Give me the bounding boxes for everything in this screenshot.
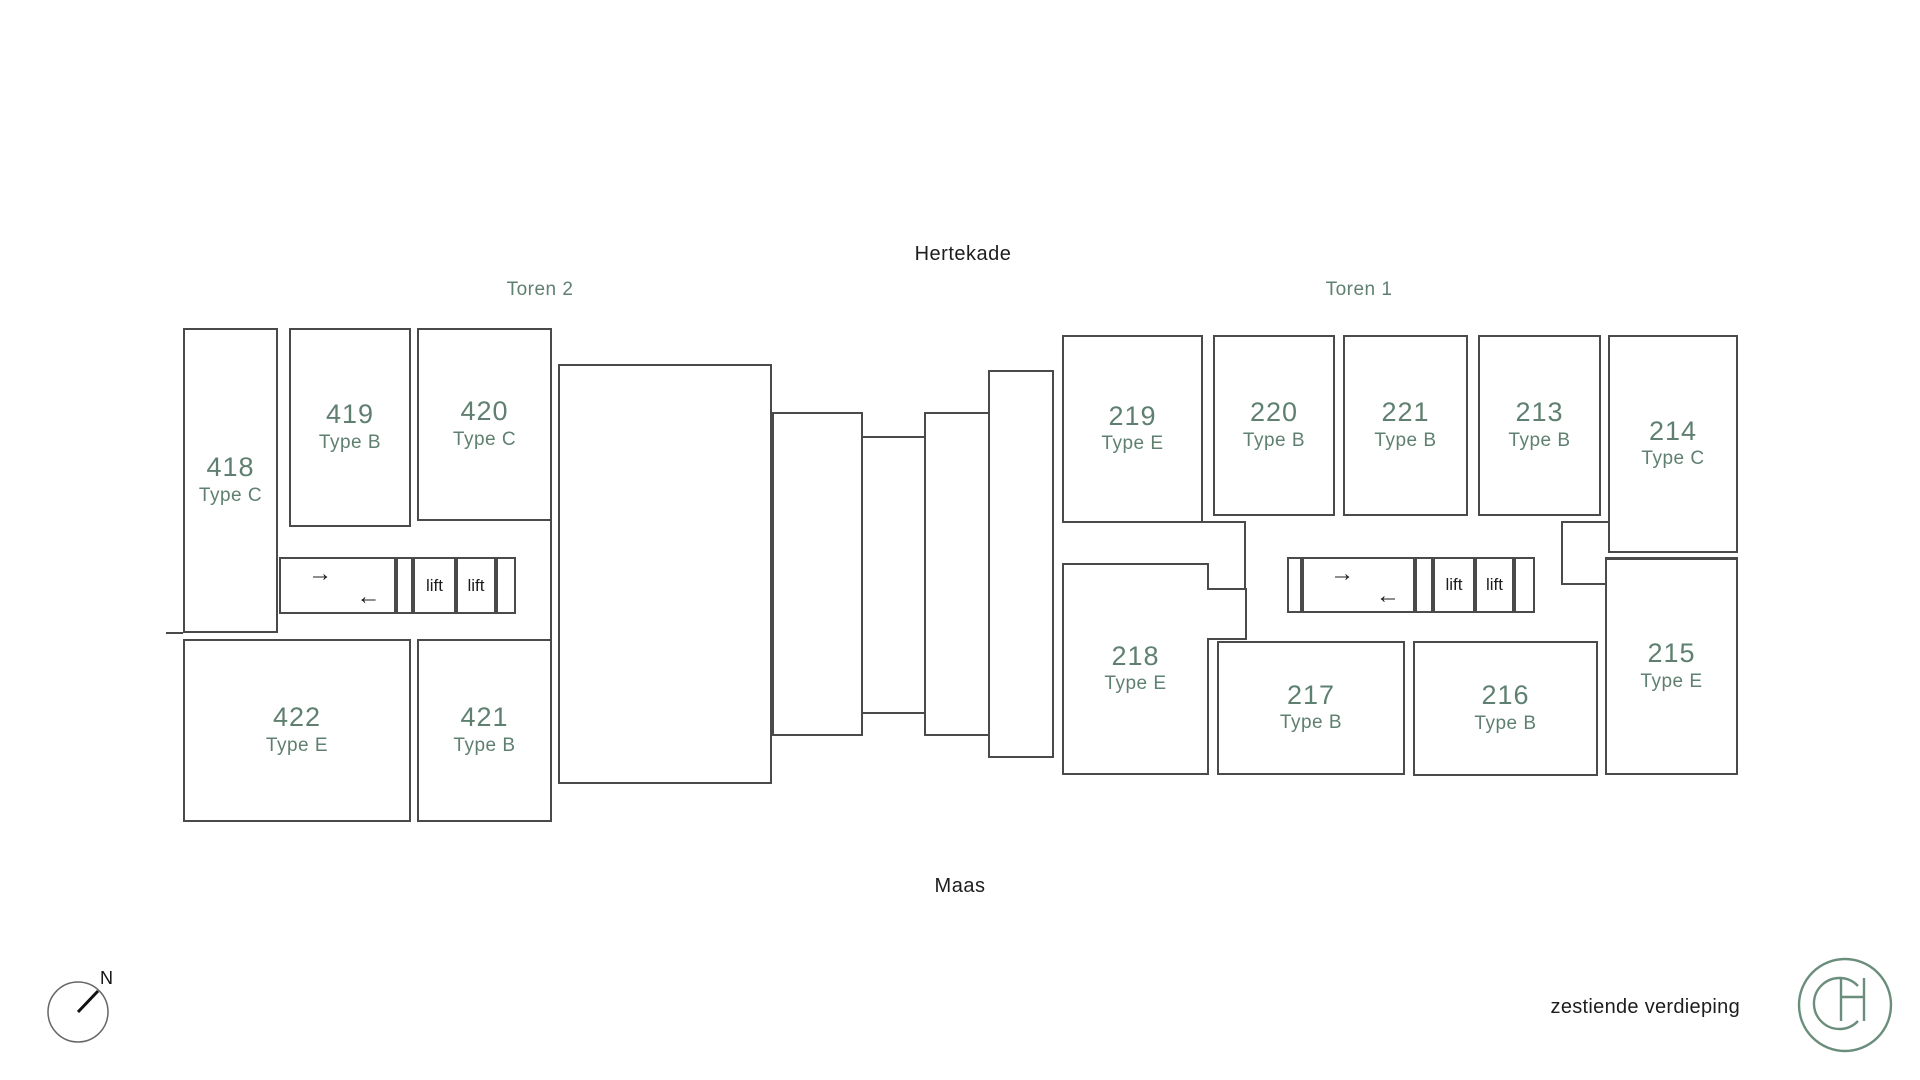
unit-type: Type C (1641, 448, 1704, 471)
tower-label-toren1: Toren 1 (1259, 279, 1459, 301)
unit-221[interactable]: 221 Type B (1343, 335, 1468, 516)
stairwell-toren2: → ← (279, 557, 396, 614)
floorplan-canvas: Hertekade Maas Toren 2 Toren 1 418 Type … (0, 0, 1920, 1080)
stairs-down-arrow-icon: ← (356, 585, 380, 609)
unit-type: Type B (453, 735, 515, 758)
unit-number: 419 (326, 400, 374, 430)
compass: N (36, 966, 128, 1052)
unit-type: Type E (1101, 433, 1163, 456)
tower-label-toren2: Toren 2 (440, 279, 640, 301)
compass-needle (78, 991, 98, 1012)
unit-419[interactable]: 419 Type B (289, 328, 411, 527)
lift-toren2-2[interactable]: lift (456, 557, 496, 614)
shaft-cell (1415, 557, 1433, 613)
wall-segment (1561, 521, 1563, 585)
unit-420[interactable]: 420 Type C (417, 328, 552, 521)
unit-type: Type B (1474, 713, 1536, 736)
stairwell-toren1: → ← (1302, 557, 1415, 613)
shaft-cell (496, 557, 516, 614)
unit-number: 215 (1647, 639, 1695, 669)
unit-number: 220 (1250, 398, 1298, 428)
core-block-mid-right (924, 412, 990, 736)
unit-type: Type C (199, 485, 262, 508)
wall-segment (1203, 521, 1246, 523)
unit-number: 213 (1515, 398, 1563, 428)
compass-north-label: N (100, 968, 113, 988)
unit-214[interactable]: 214 Type C (1608, 335, 1738, 553)
unit-220[interactable]: 220 Type B (1213, 335, 1335, 516)
unit-218[interactable]: 218 Type E (1062, 563, 1209, 775)
unit-number: 219 (1108, 402, 1156, 432)
shaft-cell (396, 557, 413, 614)
stairs-up-arrow-icon: → (308, 562, 332, 586)
core-block-tall (988, 370, 1054, 758)
unit-213[interactable]: 213 Type B (1478, 335, 1601, 516)
street-label-hertekade: Hertekade (863, 243, 1063, 266)
unit-219[interactable]: 219 Type E (1062, 335, 1203, 523)
lift-label: lift (1486, 575, 1503, 595)
lift-label: lift (1446, 575, 1463, 595)
street-label-maas: Maas (860, 875, 1060, 898)
wall-segment (1244, 521, 1246, 588)
unit-type: Type E (1640, 671, 1702, 694)
unit-422[interactable]: 422 Type E (183, 639, 411, 822)
unit-type: Type B (1508, 430, 1570, 453)
unit-type: Type B (1374, 430, 1436, 453)
lift-toren2-1[interactable]: lift (413, 557, 456, 614)
unit-421[interactable]: 421 Type B (417, 639, 552, 822)
unit-number: 418 (206, 453, 254, 483)
unit-type: Type E (1104, 673, 1166, 696)
wall-segment (1561, 583, 1607, 585)
lift-label: lift (468, 576, 485, 596)
wall-segment (1561, 521, 1608, 523)
unit-number: 421 (460, 703, 508, 733)
unit-215[interactable]: 215 Type E (1605, 557, 1738, 775)
unit-number: 214 (1649, 417, 1697, 447)
lift-label: lift (426, 576, 443, 596)
unit-number: 420 (460, 397, 508, 427)
floor-label: zestiende verdieping (1500, 996, 1740, 1019)
unit-number: 218 (1111, 642, 1159, 672)
corridor-bridge (863, 436, 924, 714)
lift-toren1-2[interactable]: lift (1475, 557, 1514, 613)
stairs-up-arrow-icon: → (1330, 562, 1354, 586)
unit-number: 216 (1481, 681, 1529, 711)
unit-type: Type B (1243, 430, 1305, 453)
core-block-large (558, 364, 772, 784)
shaft-cell (1287, 557, 1302, 613)
unit-number: 217 (1287, 681, 1335, 711)
unit-218-entry-nook (1207, 588, 1247, 640)
stairs-down-arrow-icon: ← (1376, 584, 1400, 608)
unit-type: Type B (1280, 712, 1342, 735)
unit-216[interactable]: 216 Type B (1413, 641, 1598, 776)
wall-segment (166, 632, 183, 634)
core-block-mid-left (772, 412, 863, 736)
unit-type: Type C (453, 429, 516, 452)
unit-418[interactable]: 418 Type C (183, 328, 278, 633)
unit-type: Type E (266, 735, 328, 758)
lift-toren1-1[interactable]: lift (1433, 557, 1475, 613)
unit-type: Type B (319, 432, 381, 455)
brand-logo: CH (1795, 955, 1895, 1055)
unit-number: 221 (1381, 398, 1429, 428)
unit-number: 422 (273, 703, 321, 733)
shaft-cell (1514, 557, 1535, 613)
wall-segment (550, 521, 552, 641)
brand-logo-icon (1795, 955, 1895, 1055)
unit-217[interactable]: 217 Type B (1217, 641, 1405, 775)
